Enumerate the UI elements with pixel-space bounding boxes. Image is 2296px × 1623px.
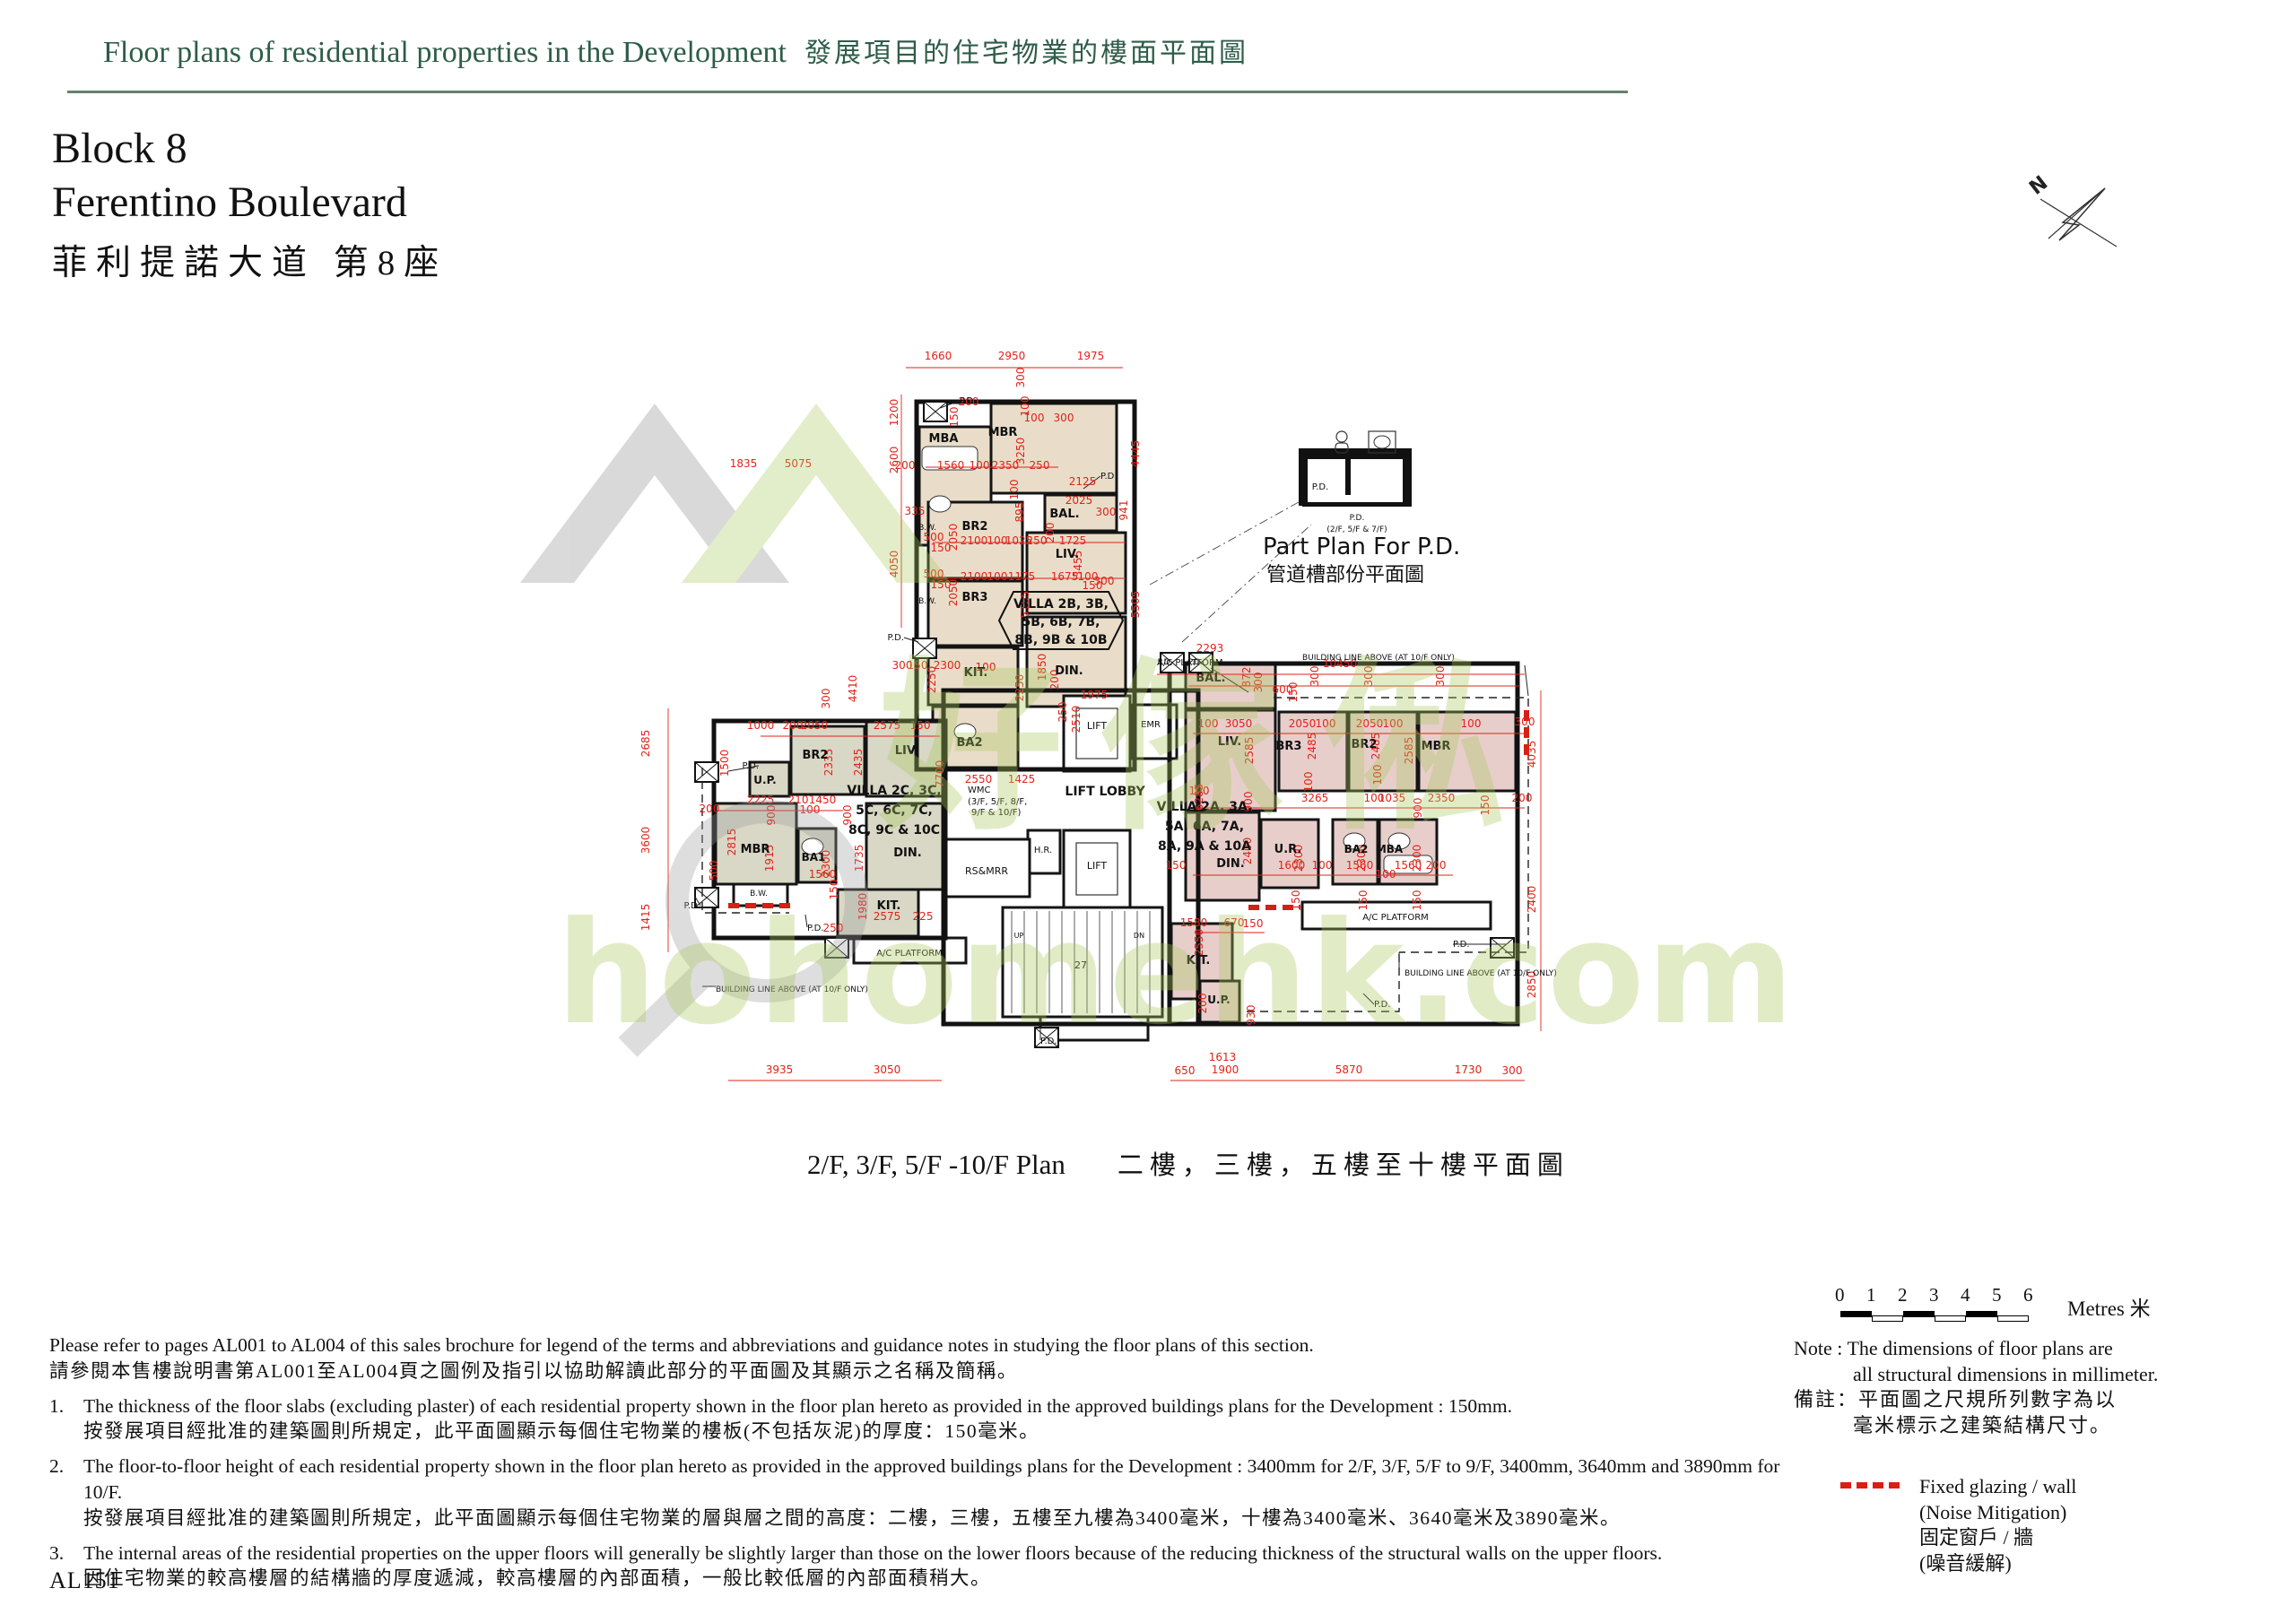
scale-tick: 4 <box>1961 1284 1970 1306</box>
dimension-label: 250 <box>823 922 844 934</box>
scale-unit: Metres 米 <box>2067 1291 2151 1322</box>
plan-label: BA2 <box>956 736 982 750</box>
dimension-note-cn1: 備註：平面圖之尺規所列數字為以 <box>1794 1387 2158 1413</box>
plan-label: P.D. <box>1158 658 1173 667</box>
dimension-label: 2435 <box>852 749 865 777</box>
floor-plan: 1660295019753001002001501003001200260040… <box>628 341 1596 1130</box>
plan-label: BAL. <box>1196 672 1225 685</box>
dimension-label: 2400 <box>1526 886 1538 914</box>
dimension-label: 250 <box>1030 459 1050 472</box>
dimension-label: 4410 <box>847 675 859 703</box>
plan-label: MBR <box>988 426 1018 439</box>
dimension-label: 2125 <box>1069 475 1097 488</box>
plan-label: 5C, 6C, 7C, <box>856 803 933 818</box>
dimension-label: 2250 <box>1013 674 1026 702</box>
dimension-label: 100 <box>970 459 990 472</box>
plan-label: LIV. <box>895 744 918 758</box>
note-item: 2. The floor-to-floor height of each res… <box>49 1454 1821 1531</box>
dimension-label: 300 <box>820 689 832 709</box>
plan-label: MBR <box>1422 740 1451 753</box>
plan-label: DN <box>1134 932 1144 940</box>
dimension-label: 1900 <box>1212 1063 1239 1076</box>
dimension-label: 2485 <box>1306 733 1318 760</box>
dimension-label: 2350 <box>1428 792 1456 804</box>
dimension-label: 1000 <box>747 719 775 732</box>
dimension-label: 2550 <box>965 773 993 785</box>
page-number: AL151 <box>49 1567 120 1594</box>
plan-label: EMR <box>1141 720 1161 730</box>
dimension-label: 100 <box>1302 772 1315 793</box>
dimension-label: 900 <box>765 805 778 826</box>
dimension-label: 150 <box>1287 682 1300 703</box>
dimension-label: 200 <box>1512 792 1533 804</box>
dimension-label: 900 <box>1412 798 1424 819</box>
note-text-cn: 因住宅物業的較高樓層的結構牆的厚度遞減，較高樓層的內部面積，一般比較低層的內部面… <box>83 1566 1662 1592</box>
page-title-cn: 發展項目的住宅物業的樓面平面圖 <box>804 39 1248 68</box>
plan-label: 9/F & 10/F) <box>971 808 1021 818</box>
dimension-label: 2585 <box>1243 737 1256 765</box>
dimension-label: 2293 <box>1196 642 1224 655</box>
plan-label: 5B, 6B, 7B, <box>1022 615 1100 629</box>
plan-label: WMC <box>968 785 991 795</box>
plan-label: VILLA 2C, 3C, <box>847 784 941 798</box>
part-plan-wall <box>1403 448 1412 506</box>
plan-label: B.W. <box>750 890 768 898</box>
plan-label: BR2 <box>962 520 988 534</box>
dimension-label: 1980 <box>857 893 869 921</box>
scale-tick: 2 <box>1898 1284 1908 1306</box>
plan-label: U.P. <box>753 774 776 786</box>
dimension-label: 1835 <box>730 457 758 470</box>
note-number: 1. <box>49 1393 83 1445</box>
scale-bar <box>1840 1311 2029 1322</box>
note-text-cn: 按發展項目經批准的建築圖則所規定，此平面圖顯示每個住宅物業的層與層之間的高度：二… <box>83 1506 1821 1532</box>
plan-label: VILLA 2B, 3B, <box>1013 597 1109 612</box>
dimension-label: 1975 <box>1081 689 1109 701</box>
note-text-en: The floor-to-floor height of each reside… <box>83 1454 1821 1506</box>
part-plan-wall <box>1299 448 1412 459</box>
plan-label: P.D. <box>1453 940 1470 950</box>
dimension-label: 150 <box>948 407 961 428</box>
dimension-label: 1730 <box>1455 1063 1483 1076</box>
dimension-label: 2815 <box>726 829 738 856</box>
plan-label: 管道槽部份平面圖 <box>1266 564 1424 586</box>
plan-caption-cn: 二樓，三樓，五樓至十樓平面圖 <box>1118 1151 1570 1180</box>
dimension-label: 100 <box>1461 717 1482 730</box>
dimension-label: 2300 <box>1411 845 1423 872</box>
dimension-label: 650 <box>1175 1064 1196 1077</box>
dimension-label: 225 <box>913 910 934 923</box>
dimension-label: 2350 <box>992 459 1020 472</box>
plan-label: H.R. <box>1034 846 1052 855</box>
plan-label: KIT. <box>1187 954 1211 968</box>
dimension-label: 250 <box>1057 702 1069 723</box>
plan-label: P.D. <box>1100 472 1118 482</box>
dimension-label: 100 <box>987 570 1008 583</box>
block-street-name: Ferentino Boulevard <box>52 178 407 227</box>
dimension-label: 2575 <box>874 719 901 732</box>
dimension-label: 1850 <box>1036 654 1048 681</box>
plan-label: P.D. <box>683 901 700 911</box>
plan-label: BA2 <box>1344 843 1369 855</box>
dimension-label: 1613 <box>1209 1051 1237 1063</box>
dimension-note-cn2: 毫米標示之建築結構尺寸。 <box>1794 1413 2158 1439</box>
fixed-glazing-legend-icon <box>1840 1482 1905 1488</box>
dimension-note: Note : The dimensions of floor plans are… <box>1794 1336 2158 1438</box>
plan-label: P.D. <box>1350 514 1365 523</box>
toilet-icon <box>929 496 951 512</box>
scale-tick: 5 <box>1992 1284 2002 1306</box>
dimension-label: 5075 <box>785 457 813 470</box>
dimension-label: 930 <box>1245 1005 1257 1026</box>
plan-label: P.D. <box>887 633 904 643</box>
plan-label: P.D. <box>1040 1037 1057 1046</box>
dimension-label: 4050 <box>888 551 900 578</box>
note-text-en: The thickness of the floor slabs (exclud… <box>83 1393 1512 1419</box>
north-arrow-icon: N <box>2009 152 2161 287</box>
dimension-label: 300 <box>1252 673 1265 693</box>
dimension-label: 100 <box>1316 717 1336 730</box>
plan-label: DIN. <box>1216 857 1244 871</box>
dimension-label: 1415 <box>639 904 652 932</box>
plan-label: BUILDING LINE ABOVE (AT 10/F ONLY) <box>1405 969 1557 978</box>
plan-label: KIT. <box>964 666 988 680</box>
dimension-label: 2250 <box>926 666 938 694</box>
title-underline <box>67 91 1628 93</box>
dimension-label: 335 <box>905 505 926 517</box>
dimension-label: 100 <box>1008 480 1021 500</box>
dimension-label: 1580 <box>1180 916 1208 929</box>
plan-label: B.W. <box>918 524 936 533</box>
dimension-label: 150 <box>1290 890 1302 911</box>
dimension-label: 200 <box>1426 859 1447 872</box>
dimension-label: 150 <box>1166 859 1187 872</box>
note-text-cn: 按發展項目經批准的建築圖則所規定，此平面圖顯示每個住宅物業的樓板(不包括灰泥)的… <box>83 1419 1512 1445</box>
plan-label: B.W. <box>918 597 936 606</box>
plan-label: BR2 <box>1352 738 1378 751</box>
plan-label: VILLA 2A, 3A, <box>1157 800 1253 814</box>
dimension-label: 1560 <box>809 868 837 881</box>
notes-intro-cn: 請參閱本售樓說明書第AL001至AL004頁之圖例及指引以協助解讀此部分的平面圖… <box>49 1358 1821 1384</box>
legend-en1: Fixed glazing / wall <box>1919 1474 2076 1500</box>
plan-label: P.D. <box>1188 658 1204 667</box>
legend-en2: (Noise Mitigation) <box>1919 1500 2076 1526</box>
plan-label: 8A, 9A & 10A <box>1158 839 1251 854</box>
dimension-label: 100 <box>1371 765 1384 785</box>
plan-label: A/C PLATFORM <box>1362 913 1429 923</box>
dimension-label: 5505 <box>1129 591 1142 619</box>
dimension-label: 2685 <box>639 730 652 758</box>
leader-line <box>1363 994 1374 1004</box>
dimension-label: 300 <box>1434 666 1447 687</box>
plan-label: 27 <box>1074 959 1087 971</box>
plan-label: P.D. <box>742 761 759 771</box>
part-plan-wall <box>1299 448 1308 506</box>
dimension-label: 150 <box>1411 890 1423 911</box>
plan-label: 8B, 9B & 10B <box>1014 633 1107 647</box>
dimension-label: 2550 <box>1193 929 1205 957</box>
plan-label: BR2 <box>803 749 829 762</box>
scale-tick: 3 <box>1929 1284 1939 1306</box>
dimension-label: 100 <box>1198 717 1219 730</box>
plan-label: P.D. <box>807 924 824 933</box>
dimension-label: 150 <box>910 719 931 732</box>
plan-label: DIN. <box>893 846 921 860</box>
plan-label: U.P. <box>1207 994 1230 1006</box>
dimension-label: 150 <box>1479 795 1492 816</box>
dimension-label: 895 <box>1013 502 1026 523</box>
dimension-label: 3265 <box>1301 792 1329 804</box>
plan-label: MBR <box>741 843 770 856</box>
person-icon <box>1336 431 1347 442</box>
dimension-label: 2050 <box>947 524 960 551</box>
dimension-label: 300 <box>1515 716 1535 728</box>
dimension-label: 3050 <box>1225 717 1253 730</box>
plan-label: MBA <box>1376 843 1404 855</box>
dimension-label: 300 <box>1502 1064 1523 1077</box>
plan-label: (3/F, 5/F, 8/F, <box>968 797 1027 807</box>
dimension-label: 150 <box>1243 917 1264 930</box>
dimension-label: 100 <box>800 803 821 816</box>
dimension-label: 1200 <box>888 399 900 427</box>
plan-label: P.D. <box>960 396 977 406</box>
legend-cn2: (噪音緩解) <box>1919 1551 2076 1577</box>
plan-label: LIFT <box>1087 720 1108 732</box>
plan-label: BUILDING LINE ABOVE (AT 10/F ONLY) <box>716 985 868 994</box>
plan-label: BAL. <box>1049 508 1079 521</box>
scale-tick: 1 <box>1866 1284 1876 1306</box>
dimension-label: 2510 <box>1070 706 1083 733</box>
dimension-label: 200 <box>1044 523 1057 543</box>
part-plan-wall <box>1345 459 1351 495</box>
plan-label: UP <box>1014 932 1024 940</box>
dimension-label: 100 <box>1376 868 1396 881</box>
plan-label: DIN. <box>1055 664 1083 678</box>
north-label: N <box>2025 172 2052 200</box>
dimension-label: 3050 <box>874 1063 901 1076</box>
plan-caption: 2/F, 3/F, 5/F -10/F Plan二樓，三樓，五樓至十樓平面圖 <box>807 1144 1570 1182</box>
dimension-label: 100 <box>1312 859 1333 872</box>
plan-label: BA1 <box>802 851 826 864</box>
dimension-label: 3935 <box>766 1063 794 1076</box>
dimension-label: 300 <box>1096 506 1117 518</box>
notes-intro-en: Please refer to pages AL001 to AL004 of … <box>49 1332 1821 1358</box>
plan-label: Part Plan For P.D. <box>1263 534 1460 560</box>
dimension-label: 670 <box>1224 916 1245 929</box>
dimension-label: 2050 <box>947 579 960 607</box>
dimension-label: 150 <box>1357 890 1370 911</box>
dimension-label: 2100 <box>961 570 988 583</box>
plan-label: BUILDING LINE ABOVE (AT 10/F ONLY) <box>1302 654 1455 663</box>
legend-cn1: 固定窗戶 / 牆 <box>1919 1525 2076 1551</box>
plan-label: 8C, 9C & 10C <box>848 823 940 838</box>
dimension-label: 2950 <box>998 350 1026 362</box>
dimension-label: 1175 <box>1008 570 1036 583</box>
dimension-label: 500 <box>708 861 720 881</box>
plan-label: LIFT <box>1087 860 1108 872</box>
dimension-label: 3600 <box>639 827 652 855</box>
page-title: Floor plans of residential properties in… <box>103 30 1248 70</box>
dimension-label: 300 <box>1309 666 1321 687</box>
dimension-label: 941 <box>1118 500 1130 521</box>
dimension-label: 1560 <box>937 459 965 472</box>
scale-tick: 0 <box>1835 1284 1845 1306</box>
dimension-label: 300 <box>1014 368 1027 388</box>
brochure-page: { "header": { "title_en": "Floor plans o… <box>0 0 2296 1623</box>
plan-label: P.D. <box>1374 1000 1391 1010</box>
part-plan-wall <box>1302 502 1412 507</box>
dimension-note-en1: Note : The dimensions of floor plans are <box>1794 1336 2158 1362</box>
dimension-label: 1500 <box>718 750 731 777</box>
dimension-label: 2050 <box>1289 717 1317 730</box>
dimension-label: 300 <box>1362 666 1375 687</box>
dimension-label: 2585 <box>1403 737 1415 765</box>
dimension-label: 1725 <box>1059 534 1087 547</box>
plan-label: BR3 <box>1276 740 1302 753</box>
plan-label: LIV. <box>1056 548 1079 561</box>
plan-label: MBA <box>929 432 959 446</box>
dimension-label: 300 <box>1054 412 1074 424</box>
note-text-en: The internal areas of the residential pr… <box>83 1541 1662 1567</box>
page-title-en: Floor plans of residential properties in… <box>103 36 787 69</box>
dimension-label: 2100 <box>961 534 988 547</box>
scale-tick: 6 <box>2023 1284 2033 1306</box>
dimension-label: 2050 <box>801 719 829 732</box>
plan-caption-en: 2/F, 3/F, 5/F -10/F Plan <box>807 1149 1065 1180</box>
plan-label: P.D. <box>1312 482 1329 492</box>
note-number: 2. <box>49 1454 83 1531</box>
dimension-label: 1660 <box>925 350 952 362</box>
plan-label: BR3 <box>962 591 988 604</box>
dimension-label: 1675 <box>1051 570 1079 583</box>
plan-label: LIV. <box>1218 735 1241 749</box>
dimension-label: 2050 <box>1356 717 1384 730</box>
dimension-label: 200 <box>700 803 720 815</box>
dimension-label: 4445 <box>1129 440 1142 468</box>
dimension-label: 150 <box>828 880 840 900</box>
glazing-legend: Fixed glazing / wall (Noise Mitigation) … <box>1840 1474 2076 1576</box>
dimension-label: 4035 <box>1526 741 1538 768</box>
plan-label: KIT. <box>877 899 901 913</box>
dimension-note-en2: all structural dimensions in millimeter. <box>1794 1362 2158 1388</box>
plan-label: 5A, 6A, 7A, <box>1165 820 1244 834</box>
dimension-label: 2025 <box>1065 494 1093 507</box>
dimension-label: 1975 <box>1077 350 1105 362</box>
note-item: 1. The thickness of the floor slabs (exc… <box>49 1393 1821 1445</box>
block-name-chinese: 菲利提諾大道 第8座 <box>52 235 448 285</box>
dimension-label: 2225 <box>747 794 775 806</box>
plan-label: A/C PLATFORM <box>876 949 943 959</box>
dimension-label: 1425 <box>1008 773 1036 785</box>
plan-label: LIFT LOBBY <box>1065 785 1145 799</box>
dimension-label: 100 <box>1383 717 1404 730</box>
block-number: Block 8 <box>52 124 187 173</box>
dimension-label: 300 <box>1094 575 1115 587</box>
dimension-label: 872 <box>1240 667 1253 688</box>
plan-label: RS&MRR <box>965 865 1008 877</box>
note-item: 3. The internal areas of the residential… <box>49 1541 1821 1593</box>
leader-line <box>1525 665 1528 696</box>
dimension-label: 5870 <box>1335 1063 1363 1076</box>
dimension-label: 100 <box>1024 412 1045 424</box>
dimension-label: 1735 <box>853 845 865 872</box>
plan-label: U.R. <box>1274 843 1302 856</box>
dimension-label: 200 <box>895 459 916 472</box>
dimension-label: 1035 <box>1378 792 1406 804</box>
notes-section: Please refer to pages AL001 to AL004 of … <box>49 1332 1821 1592</box>
